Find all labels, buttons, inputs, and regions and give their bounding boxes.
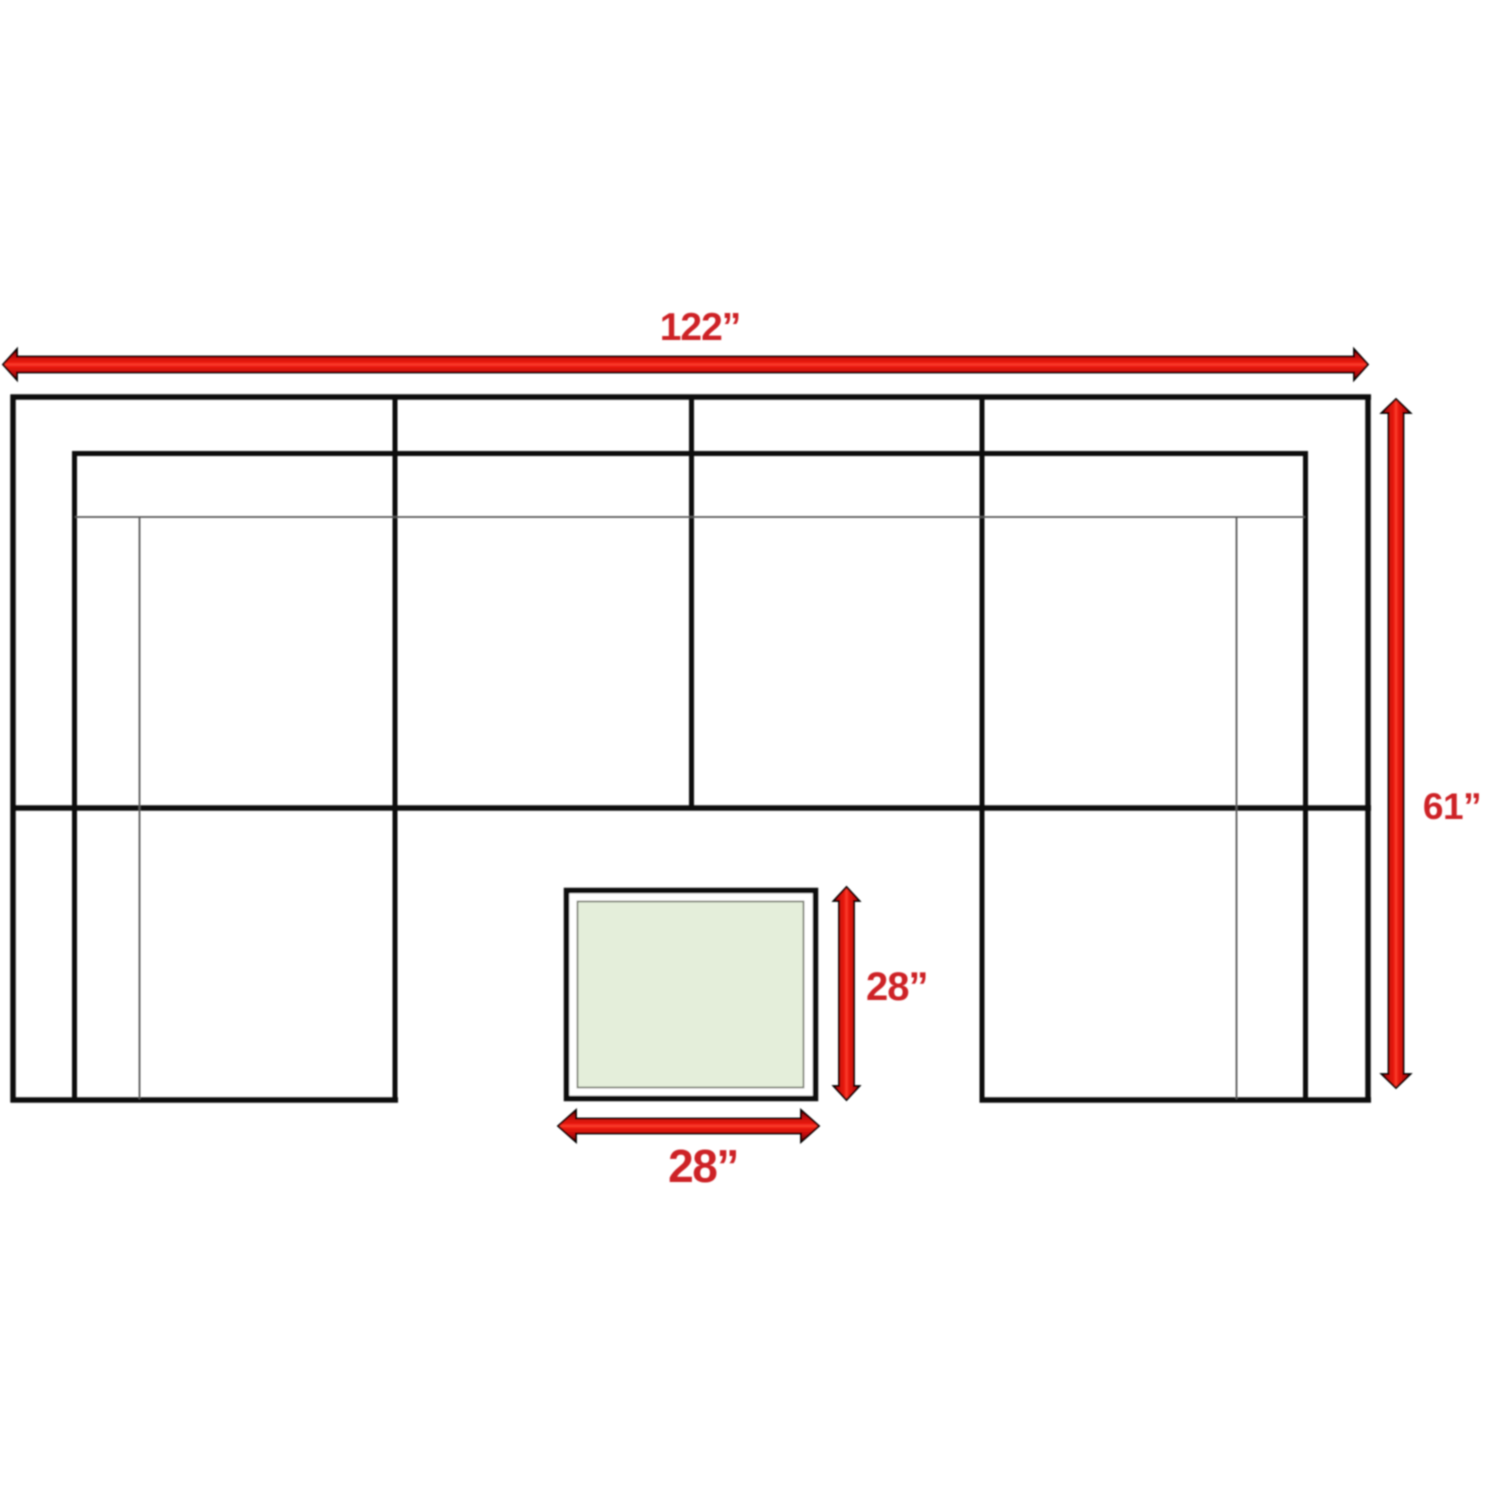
svg-text:122”: 122” bbox=[660, 306, 741, 349]
svg-text:61”: 61” bbox=[1423, 786, 1481, 827]
svg-text:28”: 28” bbox=[668, 1140, 738, 1192]
svg-text:28”: 28” bbox=[866, 965, 928, 1009]
